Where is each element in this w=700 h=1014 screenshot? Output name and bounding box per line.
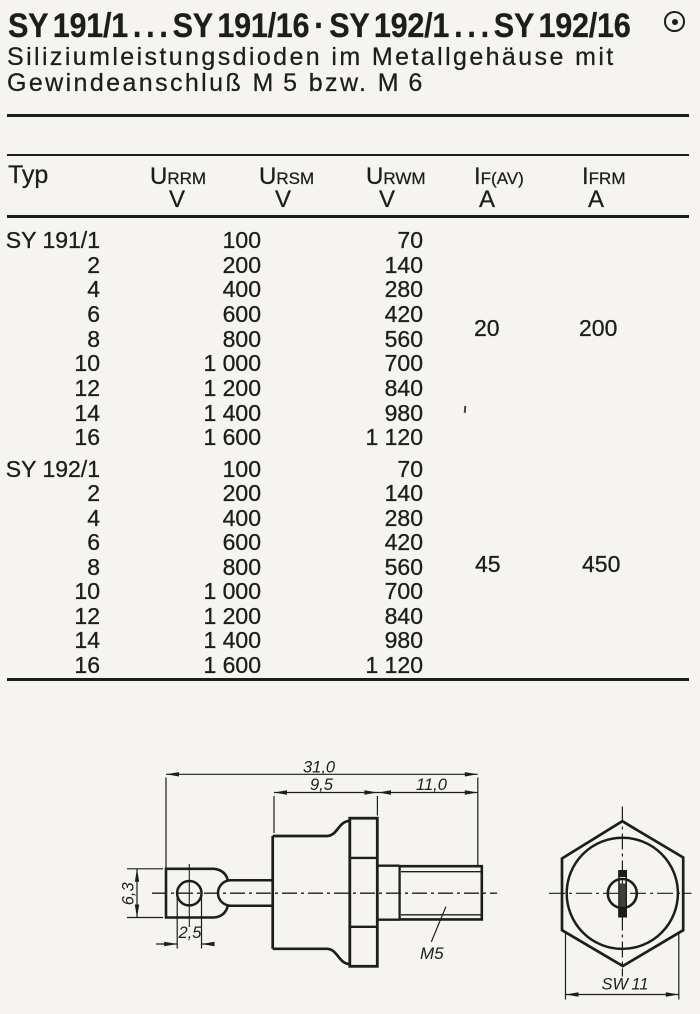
svg-text:M5: M5 [420,944,444,963]
svg-text:2,5: 2,5 [178,924,203,942]
svg-text:11,0: 11,0 [416,776,448,794]
svg-text:9,5: 9,5 [310,776,334,794]
svg-text:6,3: 6,3 [120,882,138,906]
svg-text:31,0: 31,0 [303,759,336,777]
svg-text:SW 11: SW 11 [602,975,649,993]
